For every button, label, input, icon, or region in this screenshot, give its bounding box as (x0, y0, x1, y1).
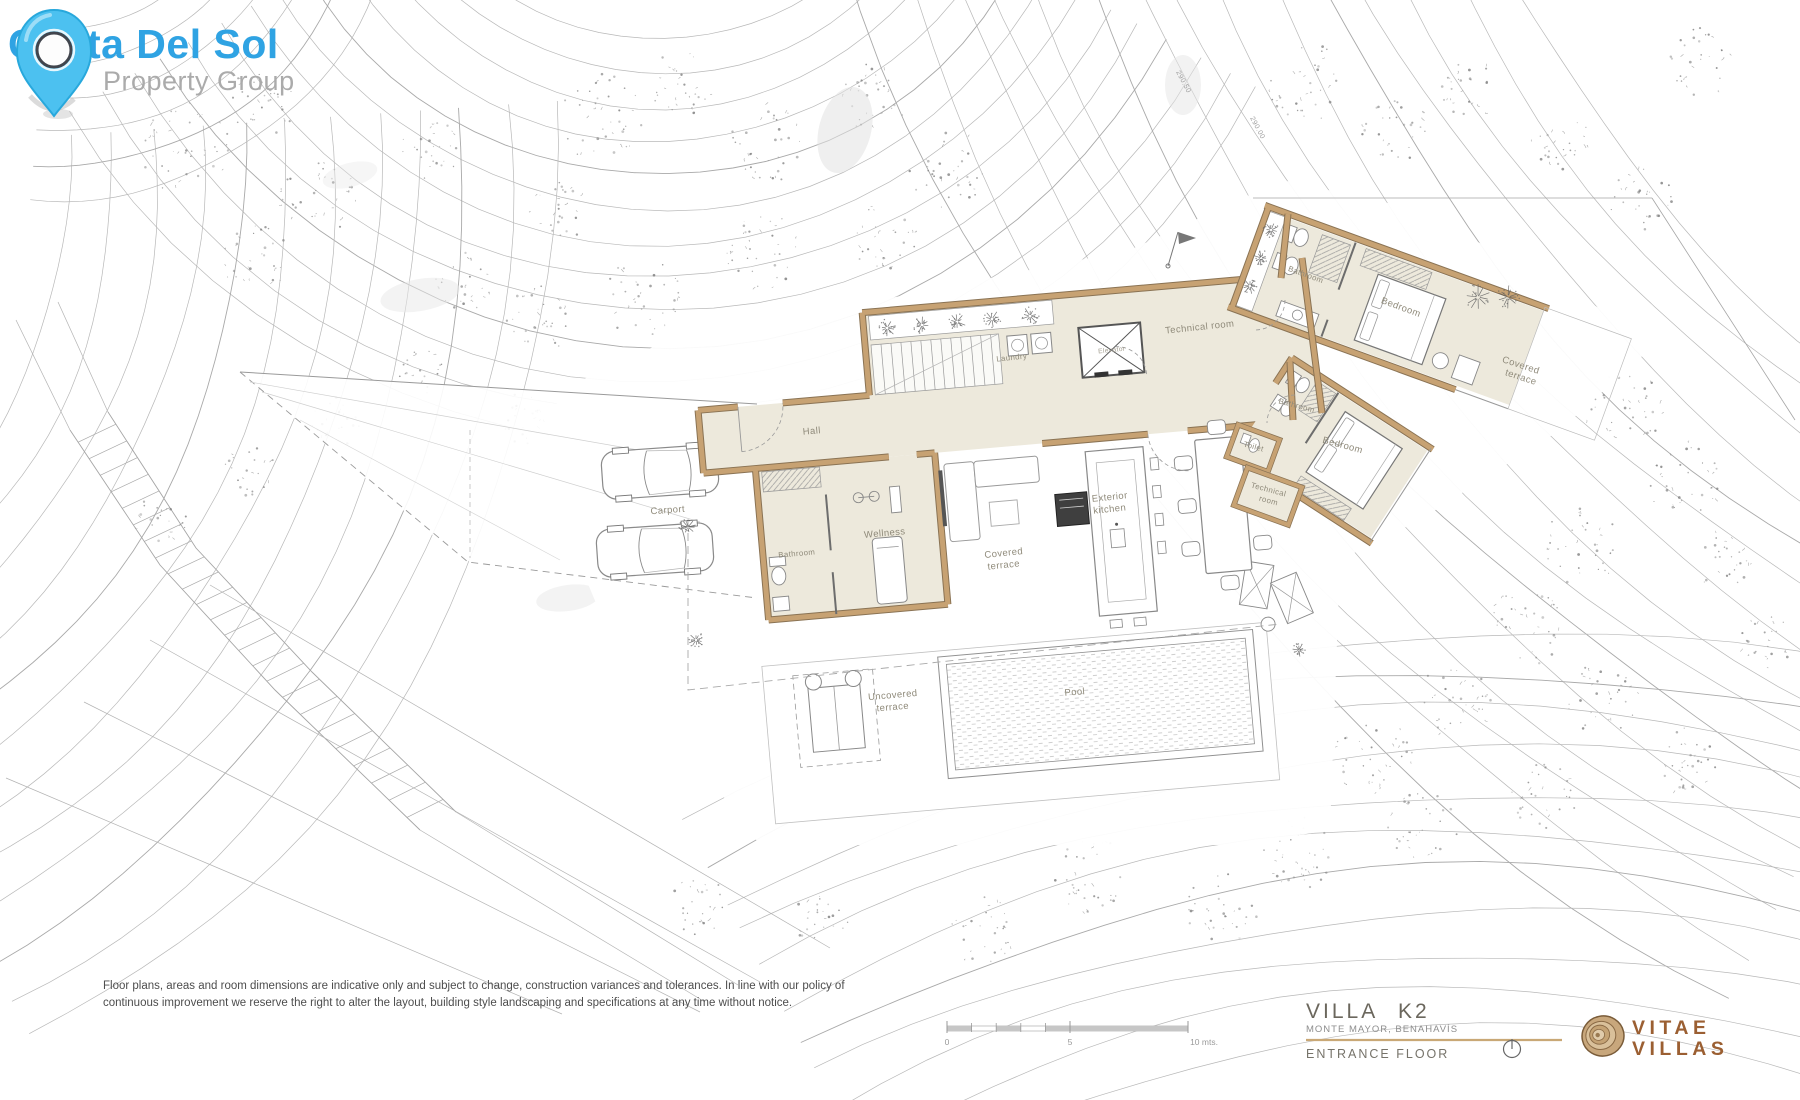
scale-zero: 0 (945, 1037, 950, 1047)
project-location: MONTE MAYOR, BENAHAVÍS (1306, 1024, 1458, 1035)
disclaimer-line-2: continuous improvement we reserve the ri… (103, 997, 792, 1009)
car (595, 519, 714, 581)
floor-plan-drawing: 290.50 290.00 (0, 0, 1800, 1100)
scale-five: 5 (1068, 1037, 1073, 1047)
scale-ten: 10 mts. (1190, 1037, 1218, 1047)
room-label-hall: Hall (802, 425, 821, 438)
project-name: VILLA (1306, 1000, 1378, 1023)
room-label-pool: Pool (1064, 686, 1086, 699)
massage-table (872, 536, 908, 604)
project-unit: K2 (1398, 1000, 1430, 1023)
vitae-villas-logo: VITAE VILLAS (1578, 1012, 1728, 1060)
floor-plan-page: 290.50 290.00 (0, 0, 1800, 1100)
publisher-name-line2: VILLAS (1632, 1038, 1728, 1060)
publisher-name-line1: VITAE (1632, 1017, 1710, 1039)
floor-name: ENTRANCE FLOOR (1306, 1047, 1449, 1061)
disclaimer-line-1: Floor plans, areas and room dimensions a… (103, 980, 845, 992)
grill (1055, 492, 1090, 527)
staircase (871, 334, 1003, 395)
brand-tagline: Property Group (103, 66, 295, 96)
